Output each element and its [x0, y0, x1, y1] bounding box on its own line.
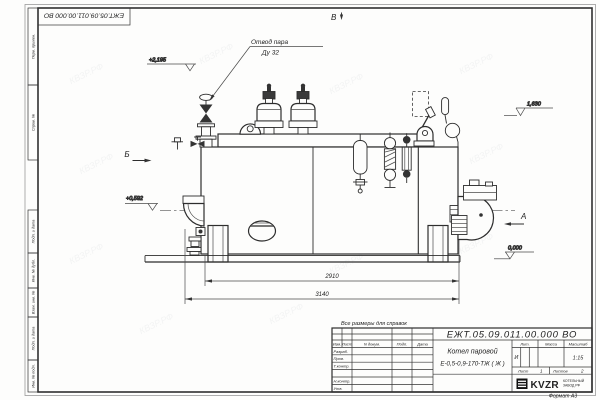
boiler-drawing-svg: КВЗР.РФ КВЗР.РФ КВЗР.РФ КВЗР.РФ КВЗР.РФ …	[0, 0, 600, 400]
tb-col-izm: Изм.	[333, 341, 342, 346]
callout-line2: Ду 32	[261, 50, 279, 57]
tb-row-razrab: Разраб.	[334, 349, 348, 354]
reference-note: Все размеры для справок	[341, 321, 407, 327]
tb-scale-value: 1:15	[573, 356, 585, 362]
side-label: Инв. № дубл.	[32, 259, 36, 282]
tb-title-line2: Е-0,5-0,9-170-ТЖ ( Ж )	[440, 361, 504, 368]
safety-valve-1	[255, 84, 283, 134]
tb-mass-header: Масса	[545, 341, 558, 346]
manhole	[249, 221, 276, 241]
kvzr-caption-1: КОТЕЛЬНЫЙ	[563, 379, 585, 383]
callout-line1: Отвод пара	[251, 38, 289, 46]
svg-text:КВЗР.РФ: КВЗР.РФ	[68, 61, 105, 86]
boiler-body	[201, 134, 458, 254]
tb-scale-header: Масштаб	[569, 341, 588, 346]
svg-text:КВЗР.РФ: КВЗР.РФ	[268, 301, 305, 326]
tb-col-podp: Подп.	[397, 341, 408, 346]
svg-text:КВЗР.РФ: КВЗР.РФ	[328, 251, 365, 276]
level-left-text: +0,592	[126, 196, 143, 202]
dim-outer-text: 3140	[315, 292, 329, 298]
side-label: Подп. и дата	[32, 220, 36, 244]
tb-sheets-label: Листов	[552, 368, 568, 373]
tb-sheet-label: Лист	[517, 368, 529, 373]
safety-valve-2	[289, 84, 317, 134]
water-level-gauge	[384, 133, 395, 188]
level-right-text: 1,630	[527, 102, 542, 108]
view-left-letter: Б	[124, 150, 129, 159]
tb-sheet-value: 1	[540, 368, 543, 373]
title-block: Все размеры для справок Изм. Лист N доку…	[332, 321, 592, 392]
kvzr-logo: KVZR КОТЕЛЬНЫЙ ЗАВОД РФ	[517, 379, 585, 392]
side-label: Инв. № подл.	[32, 364, 36, 388]
side-label: Справ. №	[32, 114, 36, 131]
tb-sheets-value: 2	[580, 368, 584, 373]
level-top-text: +2,195	[149, 58, 167, 64]
view-top-letter: В	[331, 13, 337, 22]
tb-row-prov: Пров.	[334, 356, 345, 361]
tb-row-utv: Утв.	[334, 386, 343, 391]
svg-text:КВЗР.РФ: КВЗР.РФ	[138, 311, 175, 336]
drawing-sheet: КВЗР.РФ КВЗР.РФ КВЗР.РФ КВЗР.РФ КВЗР.РФ …	[0, 0, 600, 400]
svg-text:КВЗР.РФ: КВЗР.РФ	[198, 41, 235, 66]
tb-row-nkontr: Н.контр.	[334, 378, 351, 383]
level-zero-text: 0,000	[508, 246, 523, 252]
tb-doc-number: ЕЖТ.05.09.011.00.000 ВО	[447, 330, 577, 341]
side-label: Подп. и дата	[32, 327, 36, 351]
siphon-loop-sensor	[442, 98, 460, 147]
svg-text:КВЗР.РФ: КВЗР.РФ	[458, 51, 495, 76]
top-stamp-doc-number: ЕЖТ.05.09.011.00.000 ВО	[43, 12, 124, 19]
tb-col-data: Дата	[416, 341, 428, 346]
steam-outlet-valve	[196, 94, 216, 147]
svg-text:КВЗР.РФ: КВЗР.РФ	[468, 141, 505, 166]
top-stamp-box: ЕЖТ.05.09.011.00.000 ВО	[38, 8, 130, 25]
side-label: Перв. примен.	[32, 34, 36, 59]
side-label: Взам. инв. №	[32, 291, 36, 314]
tb-title-line1: Котел паровой	[447, 348, 497, 356]
format-label: Формат А3	[549, 394, 577, 400]
tb-row-tkontr: Т.контр.	[334, 364, 350, 369]
kvzr-logo-text: KVZR	[531, 380, 560, 391]
kvzr-caption-2: ЗАВОД РФ	[563, 384, 580, 388]
tb-col-docnum: N докум.	[364, 341, 380, 346]
svg-text:КВЗР.РФ: КВЗР.РФ	[328, 71, 365, 96]
frame-side-columns: Перв. примен. Справ. № Подп. и дата Инв.…	[28, 8, 38, 392]
dim-inner-text: 2910	[324, 274, 339, 280]
level-indicator	[402, 133, 411, 183]
tb-lit-value: И	[514, 355, 518, 361]
svg-text:КВЗР.РФ: КВЗР.РФ	[68, 241, 105, 266]
tb-lit-header: Лит.	[519, 341, 529, 346]
view-right-letter: А	[520, 212, 526, 221]
left-drain-tap	[172, 138, 184, 150]
svg-text:КВЗР.РФ: КВЗР.РФ	[78, 151, 115, 176]
tb-col-list: Лист	[341, 341, 353, 346]
